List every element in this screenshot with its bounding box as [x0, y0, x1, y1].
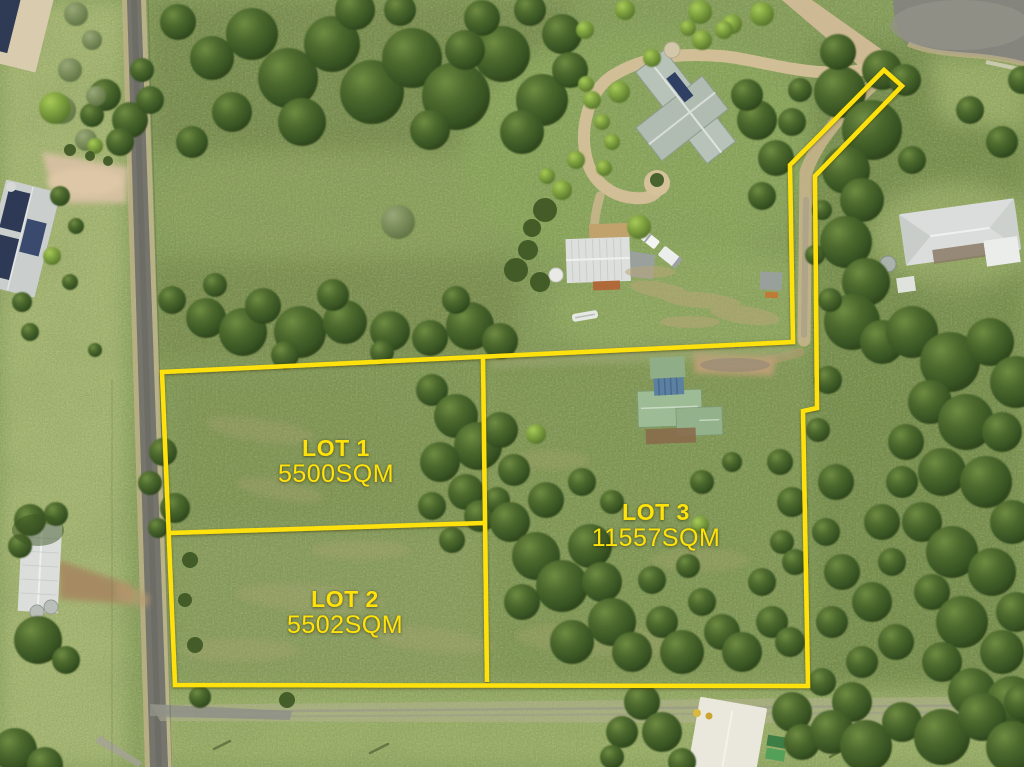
water-tank	[664, 42, 680, 58]
water-tank	[44, 600, 58, 614]
garden-shed	[896, 276, 916, 293]
bottom-house	[686, 697, 767, 767]
deck	[646, 427, 696, 444]
umbrella	[549, 268, 563, 282]
tree-shadow-over-shed	[12, 514, 64, 546]
satellite-dish	[6, 182, 16, 192]
carport	[983, 236, 1020, 266]
aerial-photo: LOT 1 5500SQM LOT 2 5502SQM LOT 3 11557S…	[0, 0, 1024, 767]
lot3-shed	[649, 356, 686, 396]
aerial-photo-canvas	[0, 0, 1024, 767]
small-shed-corridor	[760, 271, 783, 290]
yard-equipment	[693, 709, 701, 717]
container	[593, 281, 620, 291]
